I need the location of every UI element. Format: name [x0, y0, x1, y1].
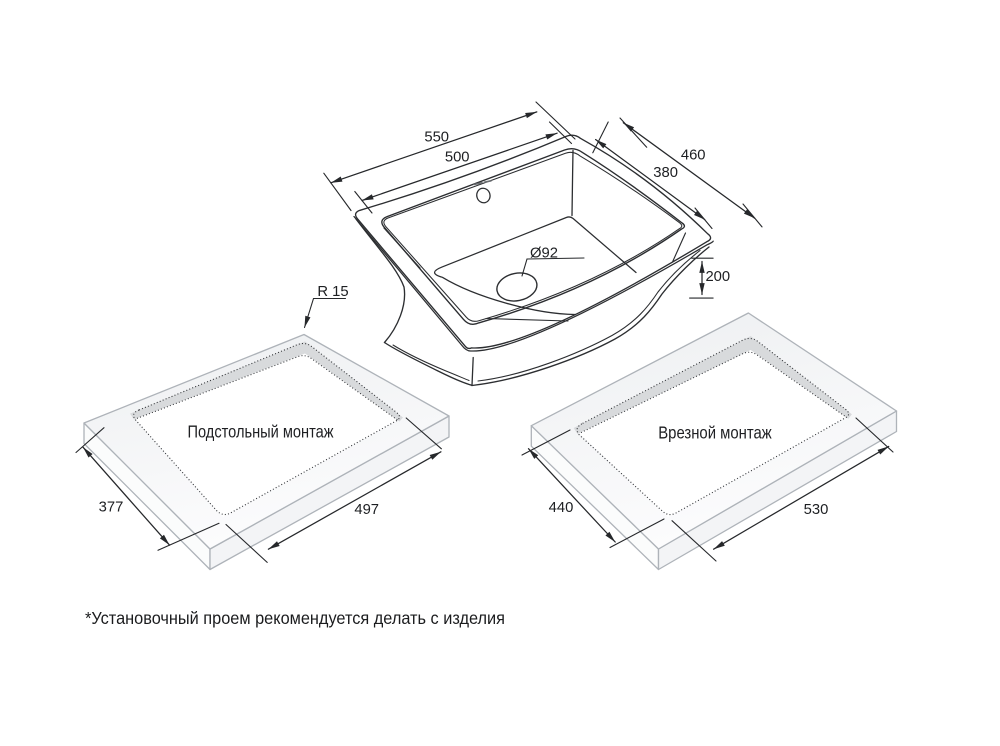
svg-text:Ø92: Ø92 [530, 246, 558, 262]
svg-text:200: 200 [705, 269, 730, 285]
svg-text:500: 500 [445, 149, 470, 165]
svg-text:Врезной монтаж: Врезной монтаж [658, 423, 772, 443]
svg-text:530: 530 [804, 502, 829, 518]
svg-text:R 15: R 15 [317, 284, 348, 300]
svg-text:460: 460 [681, 148, 706, 164]
svg-text:550: 550 [424, 130, 449, 146]
svg-text:497: 497 [354, 502, 379, 518]
svg-text:Подстольный монтаж: Подстольный монтаж [188, 422, 334, 442]
svg-text:377: 377 [99, 500, 124, 516]
svg-text:*Установочный проем рекомендуе: *Установочный проем рекомендуется делать… [85, 608, 505, 628]
svg-text:440: 440 [549, 500, 574, 516]
svg-text:380: 380 [653, 165, 678, 181]
